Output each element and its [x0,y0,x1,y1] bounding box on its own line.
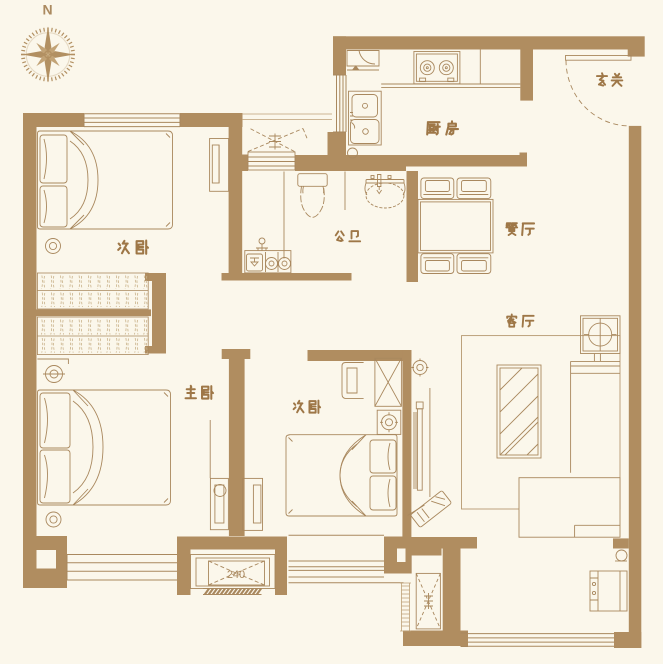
svg-text:240: 240 [227,569,245,581]
svg-text:N: N [42,2,52,18]
